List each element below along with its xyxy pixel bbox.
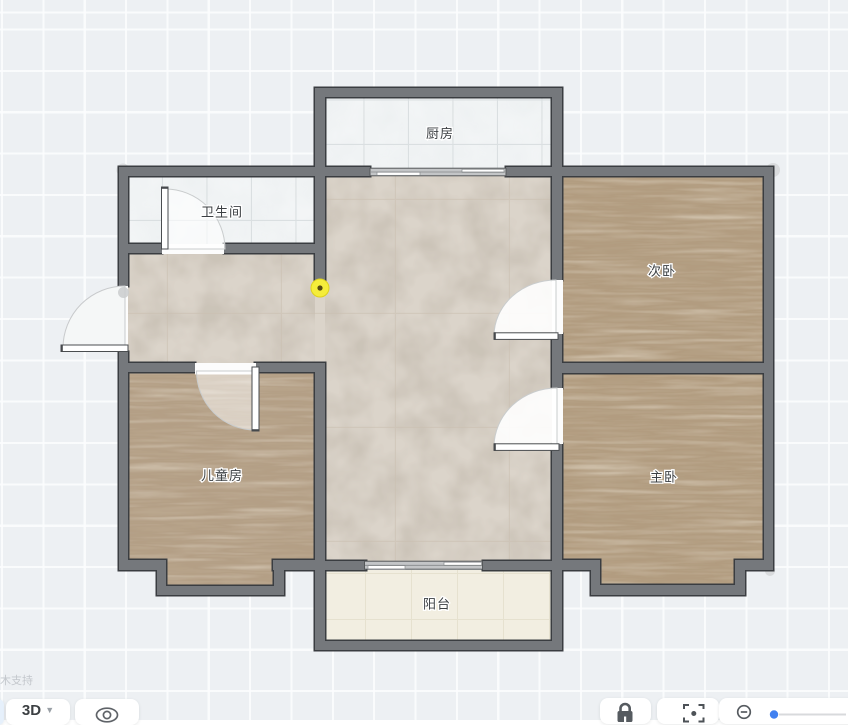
- svg-text:次卧: 次卧: [648, 264, 676, 279]
- svg-text:卫生间: 卫生间: [201, 205, 243, 220]
- svg-text:儿童房: 儿童房: [201, 468, 243, 483]
- svg-text:主卧: 主卧: [650, 470, 678, 485]
- svg-text:厨房: 厨房: [426, 126, 454, 141]
- svg-text:阳台: 阳台: [423, 597, 451, 612]
